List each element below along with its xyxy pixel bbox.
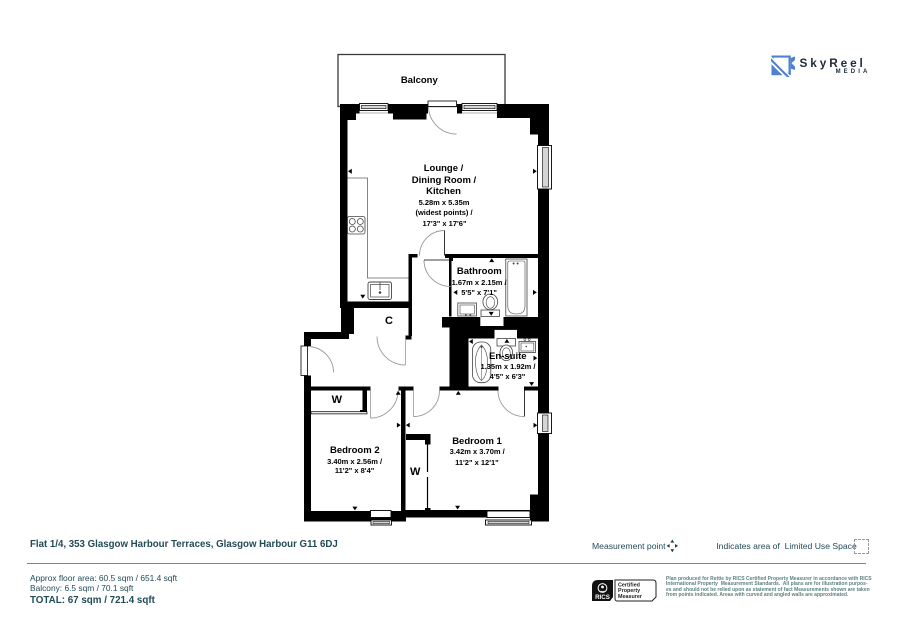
svg-text:RICS: RICS (595, 594, 610, 601)
svg-text:Measurer: Measurer (618, 594, 643, 600)
